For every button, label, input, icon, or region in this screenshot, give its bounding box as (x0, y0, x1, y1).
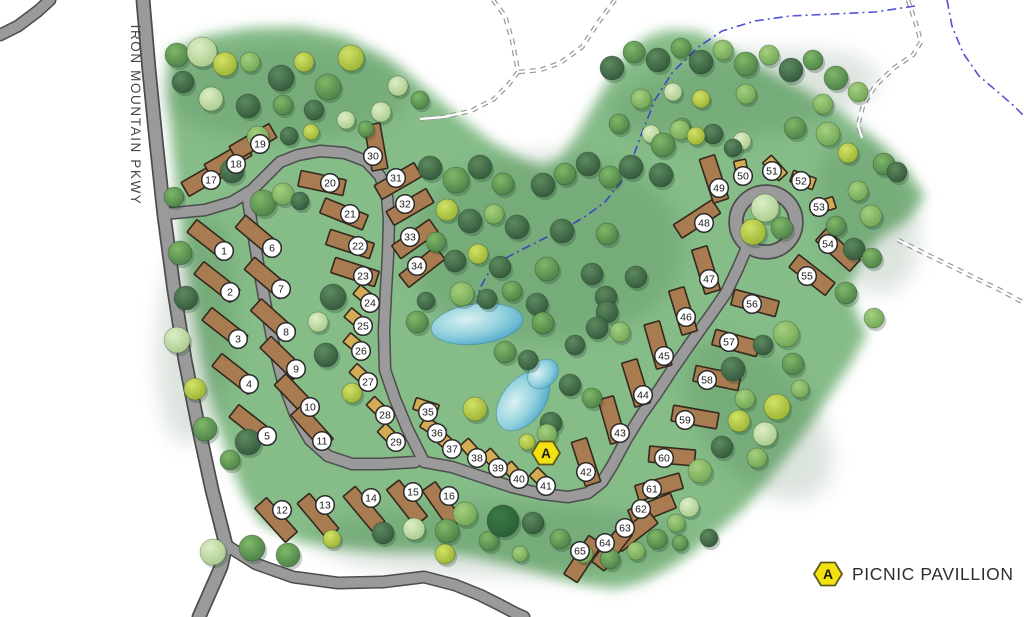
tree-icon (291, 192, 309, 210)
tree-icon (596, 223, 618, 245)
road-top-corner (0, 0, 50, 35)
tree-icon (184, 378, 206, 400)
tree-icon (554, 163, 576, 185)
tree-icon (651, 133, 675, 157)
site-number-36: 36 (431, 428, 443, 440)
tree-icon (609, 114, 629, 134)
site-number-51: 51 (766, 166, 778, 178)
site-number-60: 60 (658, 453, 670, 465)
site-number-57: 57 (723, 337, 735, 349)
picnic-pavilion-marker-letter: A (541, 446, 551, 461)
tree-icon (531, 173, 555, 197)
tree-icon (627, 542, 645, 560)
tree-icon (276, 543, 300, 567)
site-number-13: 13 (319, 500, 331, 512)
tree-icon (418, 156, 442, 180)
site-number-38: 38 (471, 453, 483, 465)
tree-icon (848, 82, 868, 102)
tree-icon (406, 311, 428, 333)
tree-icon (816, 122, 840, 146)
site-number-34: 34 (411, 261, 423, 273)
tree-icon (372, 522, 394, 544)
site-number-52: 52 (795, 176, 807, 188)
site-number-14: 14 (365, 493, 377, 505)
tree-icon (303, 124, 319, 140)
site-number-29: 29 (390, 437, 402, 449)
tree-icon (314, 343, 338, 367)
tree-icon (700, 529, 718, 547)
tree-icon (458, 209, 482, 233)
site-number-47: 47 (703, 274, 715, 286)
site-number-1: 1 (221, 246, 227, 258)
tree-icon (338, 45, 364, 71)
tree-icon (436, 199, 458, 221)
tree-icon (826, 216, 846, 236)
trail-line (518, 0, 615, 72)
tree-icon (403, 518, 425, 540)
site-number-23: 23 (357, 271, 369, 283)
site-number-32: 32 (399, 199, 411, 211)
tree-icon (487, 505, 519, 537)
site-number-35: 35 (422, 407, 434, 419)
tree-icon (193, 417, 217, 441)
tree-icon (664, 83, 682, 101)
tree-icon (838, 143, 858, 163)
site-map-svg: 1234567891011121314151617181920212223242… (0, 0, 1024, 617)
site-number-15: 15 (407, 487, 419, 499)
site-number-48: 48 (698, 218, 710, 230)
tree-icon (688, 459, 712, 483)
tree-icon (619, 155, 643, 179)
trail-line-core (898, 240, 1024, 303)
legend: A PICNIC PAVILLION (812, 560, 1014, 588)
tree-icon (165, 43, 189, 67)
site-number-4: 4 (246, 379, 252, 391)
tree-icon (771, 217, 793, 239)
tree-icon (791, 380, 809, 398)
tree-icon (199, 87, 223, 111)
legend-marker-letter: A (823, 566, 833, 582)
tree-icon (435, 519, 459, 543)
tree-icon (477, 289, 497, 309)
tree-icon (779, 58, 803, 82)
tree-icon (740, 219, 766, 245)
tree-icon (862, 248, 882, 268)
tree-icon (304, 100, 324, 120)
site-number-3: 3 (235, 334, 241, 346)
site-number-41: 41 (540, 481, 552, 493)
tree-icon (463, 397, 487, 421)
tree-icon (672, 535, 688, 551)
tree-icon (236, 94, 260, 118)
tree-icon (753, 335, 773, 355)
tree-icon (435, 544, 455, 564)
site-number-16: 16 (443, 491, 455, 503)
tree-icon (734, 52, 758, 76)
tree-icon (565, 335, 585, 355)
site-number-46: 46 (680, 312, 692, 324)
site-number-18: 18 (230, 159, 242, 171)
tree-icon (813, 94, 833, 114)
tree-icon (671, 38, 691, 58)
tree-icon (444, 250, 466, 272)
tree-icon (784, 117, 806, 139)
tree-icon (751, 194, 779, 222)
site-number-27: 27 (362, 377, 374, 389)
tree-icon (625, 266, 647, 288)
tree-icon (610, 322, 630, 342)
tree-icon (518, 350, 538, 370)
site-number-17: 17 (205, 175, 217, 187)
site-number-6: 6 (269, 243, 275, 255)
site-number-61: 61 (646, 484, 658, 496)
tree-icon (526, 293, 548, 315)
tree-icon (735, 389, 755, 409)
tree-icon (502, 281, 522, 301)
site-number-2: 2 (227, 287, 233, 299)
tree-icon (468, 244, 488, 264)
tree-icon (489, 256, 511, 278)
tree-icon (268, 65, 294, 91)
tree-icon (782, 353, 804, 375)
tree-icon (468, 155, 492, 179)
tree-icon (550, 529, 570, 549)
tree-icon (887, 162, 907, 182)
tree-icon (484, 204, 504, 224)
tree-icon (600, 56, 624, 80)
tree-icon (172, 71, 194, 93)
tree-icon (164, 187, 184, 207)
tree-icon (213, 52, 237, 76)
tree-icon (582, 388, 602, 408)
site-number-54: 54 (822, 239, 834, 251)
site-number-62: 62 (635, 504, 647, 516)
tree-icon (450, 282, 474, 306)
tree-icon (443, 167, 469, 193)
tree-icon (687, 127, 705, 145)
tree-icon (759, 45, 779, 65)
tree-icon (721, 357, 745, 381)
site-number-22: 22 (352, 241, 364, 253)
tree-icon (623, 41, 645, 63)
tree-icon (239, 535, 265, 561)
site-number-58: 58 (701, 375, 713, 387)
site-number-39: 39 (492, 463, 504, 475)
tree-icon (631, 89, 651, 109)
site-number-64: 64 (599, 538, 611, 550)
tree-icon (649, 163, 673, 187)
tree-icon (843, 238, 865, 260)
tree-icon (522, 512, 544, 534)
site-number-26: 26 (355, 346, 367, 358)
tree-icon (835, 282, 857, 304)
site-number-55: 55 (801, 271, 813, 283)
tree-icon (646, 48, 670, 72)
tree-icon (679, 497, 699, 517)
tree-icon (388, 76, 408, 96)
tree-icon (453, 502, 477, 526)
site-number-28: 28 (379, 410, 391, 422)
tree-icon (667, 514, 685, 532)
tree-icon (426, 232, 446, 252)
tree-icon (711, 436, 733, 458)
tree-icon (200, 539, 226, 565)
trail-line (493, 0, 518, 72)
tree-icon (803, 50, 823, 70)
trail-line-core (518, 0, 615, 72)
tree-icon (728, 410, 750, 432)
site-number-19: 19 (254, 139, 266, 151)
tree-icon (492, 173, 514, 195)
stream-line (947, 0, 1024, 116)
tree-icon (358, 121, 374, 137)
tree-icon (174, 286, 198, 310)
tree-icon (713, 40, 733, 60)
tree-icon (417, 292, 435, 310)
site-number-8: 8 (283, 327, 289, 339)
site-number-11: 11 (317, 436, 328, 448)
tree-icon (164, 327, 190, 353)
tree-icon (692, 90, 710, 108)
site-number-49: 49 (713, 183, 725, 195)
tree-icon (753, 422, 777, 446)
site-number-5: 5 (264, 431, 270, 443)
legend-label: PICNIC PAVILLION (852, 564, 1014, 585)
tree-icon (308, 312, 328, 332)
tree-icon (724, 139, 742, 157)
tree-icon (337, 111, 355, 129)
tree-icon (220, 450, 240, 470)
site-number-20: 20 (324, 178, 336, 190)
tree-icon (168, 241, 192, 265)
site-number-9: 9 (293, 364, 299, 376)
tree-icon (599, 166, 621, 188)
tree-icon (689, 50, 713, 74)
site-number-40: 40 (513, 474, 525, 486)
tree-icon (535, 257, 559, 281)
tree-icon (519, 434, 535, 450)
site-number-42: 42 (580, 467, 592, 479)
site-number-7: 7 (278, 284, 284, 296)
tree-icon (512, 546, 528, 562)
picnic-pavilion-legend-icon: A (812, 560, 844, 588)
tree-icon (323, 530, 341, 548)
site-number-50: 50 (737, 171, 749, 183)
tree-icon (773, 321, 799, 347)
site-number-31: 31 (390, 173, 402, 185)
site-number-24: 24 (364, 298, 376, 310)
site-number-45: 45 (658, 351, 670, 363)
tree-icon (860, 205, 882, 227)
site-number-10: 10 (304, 402, 316, 414)
site-number-53: 53 (813, 202, 825, 214)
tree-icon (550, 219, 574, 243)
site-number-12: 12 (276, 505, 288, 517)
site-number-25: 25 (357, 321, 369, 333)
tree-icon (864, 308, 884, 328)
tree-icon (586, 317, 608, 339)
site-number-65: 65 (574, 546, 586, 558)
site-number-56: 56 (746, 299, 758, 311)
site-number-44: 44 (637, 390, 649, 402)
tree-icon (273, 95, 293, 115)
tree-icon (235, 429, 261, 455)
tree-icon (532, 312, 554, 334)
tree-icon (294, 52, 314, 72)
tree-icon (647, 529, 667, 549)
tree-icon (505, 215, 529, 239)
tree-icon (411, 91, 429, 109)
road-label-iron-mountain-pkwy: IRON MOUNTAIN PKWY (128, 25, 143, 206)
site-number-30: 30 (367, 151, 379, 163)
tree-icon (764, 394, 790, 420)
tree-icon (848, 181, 868, 201)
tree-icon (280, 127, 298, 145)
site-number-33: 33 (404, 232, 416, 244)
tree-icon (824, 66, 848, 90)
tree-icon (576, 152, 600, 176)
site-number-43: 43 (614, 428, 626, 440)
tree-icon (559, 374, 581, 396)
campground-map: 1234567891011121314151617181920212223242… (0, 0, 1024, 617)
site-number-21: 21 (344, 209, 356, 221)
site-number-37: 37 (446, 444, 458, 456)
site-number-63: 63 (619, 523, 631, 535)
tree-icon (581, 263, 603, 285)
tree-icon (240, 52, 260, 72)
site-number-59: 59 (679, 415, 691, 427)
tree-icon (320, 284, 346, 310)
tree-icon (494, 341, 516, 363)
tree-icon (747, 448, 767, 468)
tree-icon (736, 84, 756, 104)
tree-icon (315, 74, 341, 100)
tree-icon (187, 37, 217, 67)
tree-icon (371, 102, 391, 122)
